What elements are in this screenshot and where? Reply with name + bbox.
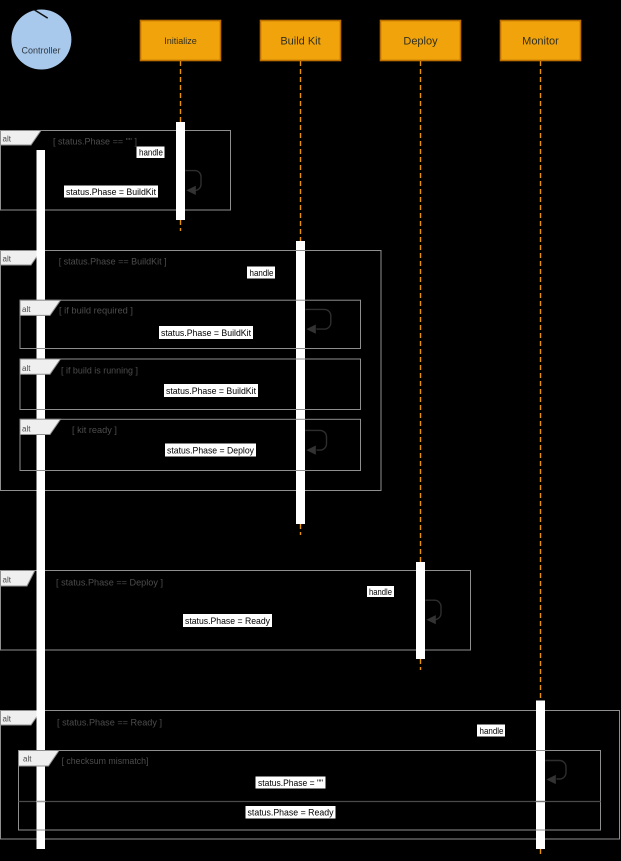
svg-text:[ checksum mismatch]: [ checksum mismatch] xyxy=(62,756,149,767)
svg-text:alt: alt xyxy=(3,135,12,144)
svg-text:alt: alt xyxy=(22,364,31,373)
svg-text:alt: alt xyxy=(23,755,32,764)
svg-text:status.Phase = Deploy: status.Phase = Deploy xyxy=(167,446,254,457)
svg-text:alt: alt xyxy=(22,305,31,314)
svg-text:[ status.Phase == BuildKit ]: [ status.Phase == BuildKit ] xyxy=(59,256,167,267)
svg-text:status.Phase = BuildKit: status.Phase = BuildKit xyxy=(66,187,156,198)
svg-text:alt: alt xyxy=(3,715,12,724)
svg-text:Controller: Controller xyxy=(21,46,60,56)
svg-text:alt: alt xyxy=(22,424,31,433)
svg-text:handle: handle xyxy=(369,587,392,598)
svg-text:status.Phase = Ready: status.Phase = Ready xyxy=(248,808,334,819)
svg-text:alt: alt xyxy=(3,255,12,264)
svg-text:[ status.Phase == Ready ]: [ status.Phase == Ready ] xyxy=(57,718,162,729)
svg-text:[ status.Phase == Deploy ]: [ status.Phase == Deploy ] xyxy=(56,578,163,589)
svg-text:[ if build is running ]: [ if build is running ] xyxy=(61,366,138,377)
svg-text:Monitor: Monitor xyxy=(522,36,559,48)
svg-text:status.Phase = BuildKit: status.Phase = BuildKit xyxy=(166,386,256,397)
svg-text:[ status.Phase == "" ]: [ status.Phase == "" ] xyxy=(53,136,137,147)
svg-text:handle: handle xyxy=(139,148,163,159)
svg-text:status.Phase = Ready: status.Phase = Ready xyxy=(185,616,270,627)
svg-text:handle: handle xyxy=(250,268,274,279)
svg-text:status.Phase = BuildKit: status.Phase = BuildKit xyxy=(161,328,251,339)
svg-text:handle: handle xyxy=(480,726,504,737)
svg-text:[ kit ready ]: [ kit ready ] xyxy=(72,425,117,436)
svg-text:Build Kit: Build Kit xyxy=(280,36,320,48)
svg-text:[ if build required ]: [ if build required ] xyxy=(59,306,133,317)
svg-text:Deploy: Deploy xyxy=(403,36,438,48)
svg-text:alt: alt xyxy=(3,576,12,585)
svg-text:status.Phase = "": status.Phase = "" xyxy=(258,778,323,789)
svg-text:Initialize: Initialize xyxy=(164,36,197,46)
